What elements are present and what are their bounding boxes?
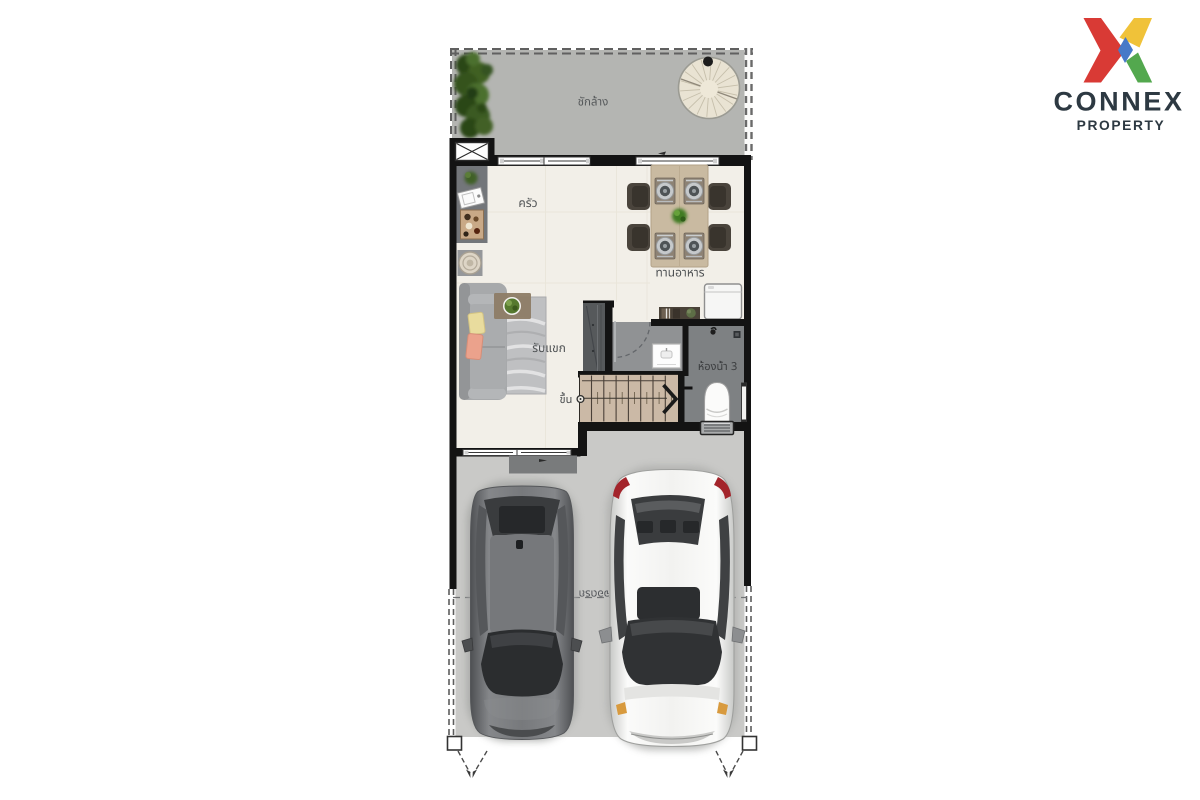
svg-text:CONNEX: CONNEX xyxy=(1053,87,1184,117)
svg-text:PROPERTY: PROPERTY xyxy=(1077,118,1166,133)
